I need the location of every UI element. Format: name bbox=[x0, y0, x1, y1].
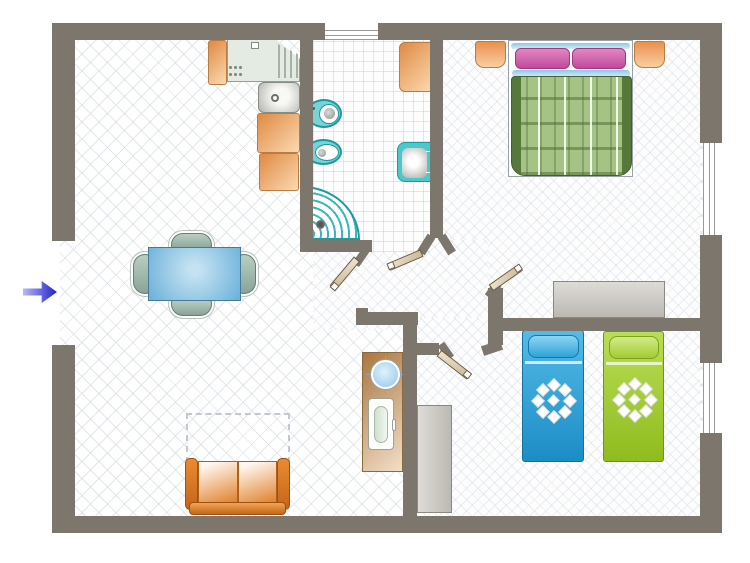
entrance-arrow-icon bbox=[23, 281, 57, 303]
bathroom-cabinet bbox=[399, 42, 433, 92]
right-wall-upper bbox=[700, 23, 722, 143]
sink-drain bbox=[271, 94, 279, 102]
dining-table bbox=[148, 247, 241, 301]
hallway-wall-horizontal2 bbox=[356, 312, 418, 325]
desk-chair bbox=[368, 398, 394, 450]
kitchen-cabinet-mid bbox=[257, 113, 300, 153]
cooktop-square bbox=[251, 42, 259, 49]
bidet-faucet bbox=[318, 149, 326, 157]
top-wall-right bbox=[378, 23, 722, 40]
bottom-wall bbox=[52, 516, 722, 533]
master-bedroom-window bbox=[703, 143, 715, 235]
kitchen-cabinet-top bbox=[208, 40, 227, 85]
green-bed-sheetline bbox=[606, 362, 662, 365]
single-bed-green bbox=[603, 331, 664, 462]
kitchen-sink bbox=[258, 82, 300, 113]
sofa-cushion-right bbox=[238, 461, 277, 505]
top-wall-left bbox=[52, 23, 325, 40]
dining-chair-bottom bbox=[171, 299, 212, 316]
sofa-back-rail bbox=[189, 502, 286, 515]
bed-blanket bbox=[511, 76, 632, 176]
dining-chair-right bbox=[239, 254, 256, 294]
green-bed-pillow bbox=[609, 336, 659, 359]
kids-door-stub bbox=[417, 343, 439, 355]
hallway-wall-vertical bbox=[403, 325, 417, 516]
bathroom-bedroom-wall bbox=[430, 40, 443, 238]
apartment-floor-plan bbox=[0, 0, 750, 563]
bathroom-window bbox=[325, 30, 378, 40]
right-wall-lower bbox=[700, 433, 722, 533]
rug-outline bbox=[186, 413, 290, 463]
kids-bedroom-window bbox=[703, 363, 715, 433]
master-wardrobe bbox=[553, 281, 665, 318]
green-bed-flower bbox=[613, 378, 657, 422]
blue-bed-sheetline bbox=[525, 361, 582, 364]
kitchen-bathroom-wall bbox=[300, 40, 313, 252]
left-wall-lower bbox=[52, 345, 75, 533]
blue-bed-flower bbox=[532, 379, 576, 423]
washbasin-bowl bbox=[402, 148, 427, 178]
sofa-cushion-left bbox=[198, 461, 238, 505]
kids-wardrobe bbox=[417, 405, 452, 513]
blue-bed-pillow bbox=[528, 335, 579, 358]
double-bed bbox=[508, 40, 633, 177]
kids-master-wall bbox=[503, 318, 700, 331]
sofa bbox=[185, 458, 290, 515]
nightstand-left bbox=[475, 41, 506, 68]
desk-chair-arm bbox=[392, 419, 396, 431]
single-bed-blue bbox=[522, 330, 584, 462]
washbasin bbox=[397, 142, 433, 182]
desk-chair-pad bbox=[374, 406, 388, 443]
cooktop-knobs bbox=[229, 66, 232, 69]
kitchen-cabinet-low bbox=[259, 153, 299, 191]
shower-drain bbox=[316, 220, 325, 229]
bathroom-door-edge bbox=[386, 261, 395, 270]
nightstand-right bbox=[634, 41, 665, 68]
left-wall-upper bbox=[52, 23, 75, 241]
toilet-bowl bbox=[324, 108, 335, 119]
pillow-left bbox=[515, 48, 570, 69]
right-wall-middle bbox=[700, 235, 722, 363]
desk-globe bbox=[371, 360, 400, 389]
pillow-right bbox=[572, 48, 626, 69]
